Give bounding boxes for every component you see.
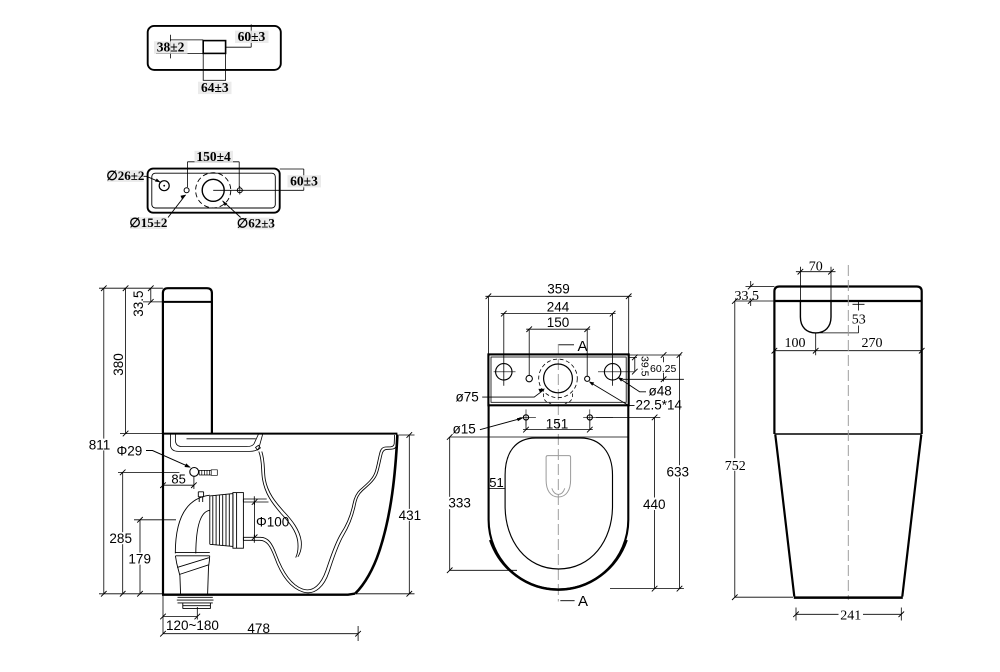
- svg-text:333: 333: [448, 496, 471, 511]
- svg-text:39.5: 39.5: [639, 356, 651, 377]
- svg-text:33.5: 33.5: [735, 289, 760, 304]
- svg-text:Φ100: Φ100: [256, 514, 289, 529]
- svg-text:60±3: 60±3: [238, 29, 266, 44]
- svg-text:478: 478: [247, 621, 270, 636]
- svg-text:270: 270: [862, 336, 883, 351]
- svg-text:359: 359: [547, 281, 570, 296]
- svg-text:380: 380: [111, 353, 126, 376]
- svg-text:100: 100: [785, 336, 806, 351]
- svg-text:85: 85: [171, 472, 185, 487]
- svg-text:60±3: 60±3: [290, 174, 318, 189]
- svg-text:64±3: 64±3: [201, 80, 229, 95]
- svg-text:33.5: 33.5: [131, 290, 146, 316]
- svg-text:811: 811: [89, 437, 111, 452]
- svg-text:60.25: 60.25: [650, 363, 676, 375]
- svg-text:∅15±2: ∅15±2: [129, 215, 167, 230]
- svg-text:Φ29: Φ29: [117, 443, 143, 458]
- svg-text:70: 70: [809, 259, 823, 274]
- svg-text:22.5*14: 22.5*14: [636, 398, 683, 413]
- svg-text:120~180: 120~180: [166, 618, 219, 633]
- svg-text:ø48: ø48: [649, 384, 672, 399]
- svg-text:150: 150: [547, 315, 570, 330]
- svg-text:38±2: 38±2: [157, 40, 185, 55]
- svg-text:431: 431: [399, 508, 422, 523]
- svg-text:241: 241: [840, 608, 861, 623]
- svg-text:150±4: 150±4: [196, 149, 231, 164]
- svg-text:∅26±2: ∅26±2: [106, 168, 144, 183]
- svg-text:A: A: [577, 338, 587, 355]
- svg-text:A: A: [578, 593, 588, 610]
- svg-text:ø75: ø75: [456, 389, 479, 404]
- svg-text:ø15: ø15: [453, 421, 476, 436]
- svg-text:151: 151: [546, 417, 569, 432]
- svg-text:752: 752: [725, 459, 746, 474]
- svg-text:51: 51: [489, 475, 503, 490]
- svg-text:633: 633: [667, 465, 690, 480]
- svg-text:440: 440: [643, 497, 666, 512]
- svg-text:244: 244: [547, 300, 570, 315]
- svg-text:∅62±3: ∅62±3: [237, 216, 275, 231]
- svg-text:53: 53: [852, 313, 866, 328]
- svg-text:179: 179: [128, 552, 151, 567]
- svg-text:285: 285: [109, 531, 132, 546]
